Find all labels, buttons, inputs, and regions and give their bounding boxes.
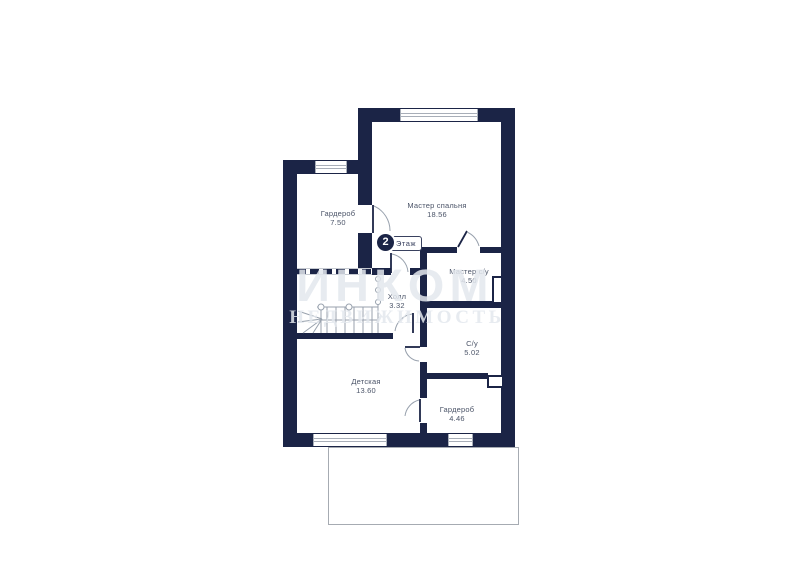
room-area: 13.60: [321, 386, 411, 395]
room-name: С/у: [427, 339, 517, 348]
vent-notch: [487, 375, 504, 388]
floor-badge-number: 2: [377, 234, 394, 251]
floor-badge-label: Этаж: [390, 236, 422, 251]
room-name: Мастер с/у: [424, 267, 514, 276]
room-label-su: С/у 5.02: [427, 339, 517, 357]
room-name: Гардероб: [412, 405, 502, 414]
door-masterbath: [458, 231, 479, 247]
room-label-hall: Холл 3.32: [352, 292, 442, 310]
watermark-subtitle: недвижимость: [284, 308, 510, 328]
room-area: 5.02: [427, 348, 517, 357]
floor-plan: Гардероб 7.50 Мастер спальня 18.56 Масте…: [0, 0, 800, 584]
lower-floor-outline: [328, 447, 519, 525]
wall-su-bottom: [426, 373, 488, 379]
door-detskaya: [395, 313, 413, 333]
door-su: [405, 347, 420, 361]
window-master-bedroom: [400, 109, 478, 121]
wall-stair-partition-dashed: [297, 268, 372, 275]
room-area: 7.50: [293, 218, 383, 227]
wall-masterbath-top-a: [420, 247, 457, 253]
room-label-masterbath: Мастер с/у 4.50: [424, 267, 514, 285]
wall-masterbath-top-b: [480, 247, 501, 253]
door-master-bedroom: [391, 253, 408, 273]
room-name: Холл: [352, 292, 442, 301]
room-name: Детская: [321, 377, 411, 386]
room-area: 18.56: [392, 210, 482, 219]
window-garderob: [315, 161, 347, 173]
floor-badge-text: Этаж: [396, 239, 416, 248]
wall-stairs-bottom: [297, 333, 393, 339]
wall-bath-left-c: [420, 423, 427, 433]
room-label-master-bedroom: Мастер спальня 18.56: [392, 201, 482, 219]
room-label-garderob-446: Гардероб 4.46: [412, 405, 502, 423]
wall-hall-partition-a: [372, 268, 391, 275]
room-name: Гардероб: [293, 209, 383, 218]
wall-hall-partition-b: [410, 268, 420, 275]
wall-master-divider-upper: [358, 108, 372, 205]
room-label-detskaya: Детская 13.60: [321, 377, 411, 395]
room-name: Мастер спальня: [392, 201, 482, 210]
room-area: 4.50: [424, 276, 514, 285]
room-area: 4.46: [412, 414, 502, 423]
window-detskaya: [313, 434, 387, 446]
window-garderob-2: [448, 434, 473, 446]
room-label-garderob-750: Гардероб 7.50: [293, 209, 383, 227]
wall-bath-left-b: [420, 362, 427, 398]
wall-left: [283, 160, 297, 447]
floor-number: 2: [382, 236, 388, 248]
room-area: 3.32: [352, 301, 442, 310]
